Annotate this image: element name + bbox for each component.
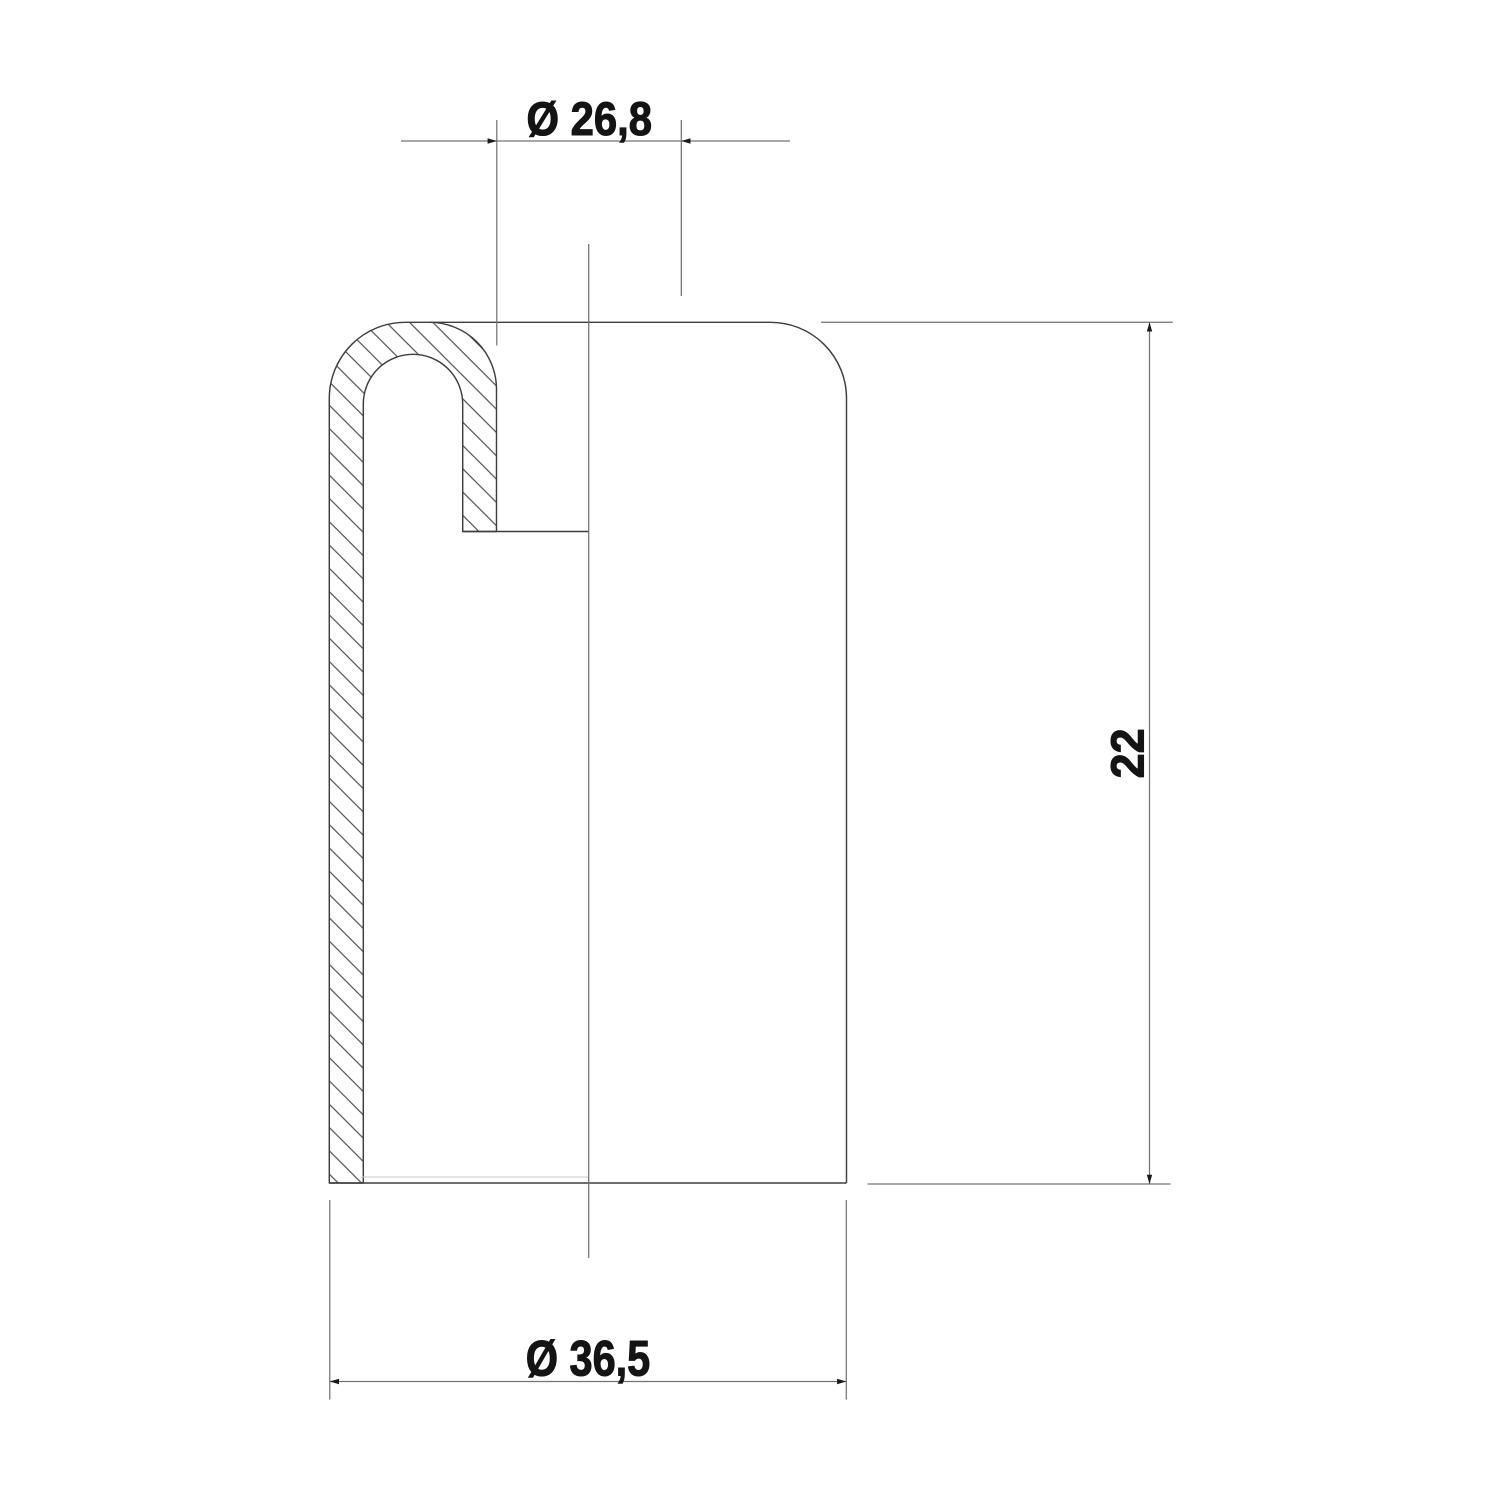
svg-text:22: 22: [1102, 728, 1154, 778]
svg-text:Ø 36,5: Ø 36,5: [526, 1330, 651, 1386]
svg-text:Ø 26,8: Ø 26,8: [527, 93, 653, 146]
